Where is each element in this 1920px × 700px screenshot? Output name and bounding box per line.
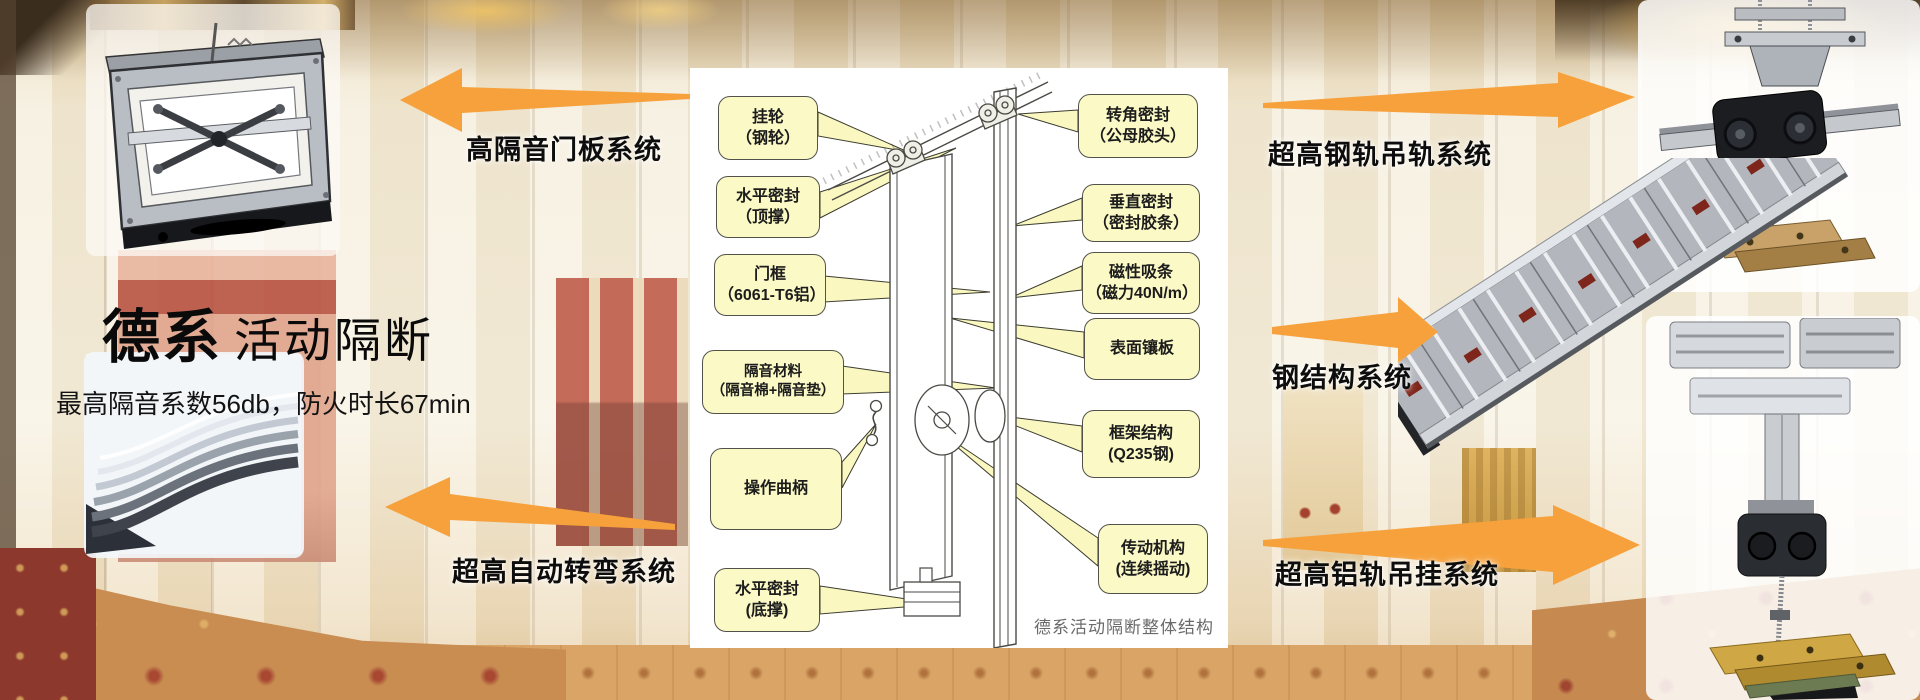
brand-product: 活动隔断: [234, 302, 434, 371]
brand-series: 德系: [102, 290, 222, 374]
callout-line2: （密封胶条）: [1093, 213, 1189, 234]
red-chair-columns: [556, 278, 688, 546]
callout-corner-seal: 转角密封 （公母胶头）: [1078, 94, 1198, 158]
callout-vertical-seal: 垂直密封 （密封胶条）: [1082, 184, 1200, 242]
callout-line1: 传动机构: [1121, 538, 1185, 559]
callout-line1: 挂轮: [752, 107, 784, 128]
aluminum-rail-system-photo: [1650, 318, 1920, 700]
callout-top-seal: 水平密封 （顶撑）: [716, 176, 820, 238]
structure-diagram-panel: 挂轮 （钢轮） 水平密封 （顶撑） 门框 （6061-T6铝） 隔音材料 （隔音…: [690, 68, 1228, 648]
callout-line2: （公母胶头）: [1090, 126, 1186, 147]
callout-hanging-wheel: 挂轮 （钢轮）: [718, 96, 818, 160]
door-panel-mechanism-photo: [88, 5, 338, 255]
callout-line1: 操作曲柄: [744, 478, 808, 499]
callout-line2: （隔音棉+隔音垫）: [711, 382, 835, 401]
label-steel-rail-system: 超高钢轨吊轨系统: [1268, 133, 1492, 172]
callout-transmission: 传动机构 (连续摇动): [1098, 524, 1208, 594]
callout-line2: （磁力40N/m）: [1086, 283, 1196, 304]
callout-line1: 转角密封: [1106, 105, 1170, 126]
label-aluminum-rail-system: 超高铝轨吊挂系统: [1275, 553, 1499, 592]
left-wall-edge: [0, 0, 16, 565]
callout-line1: 隔音材料: [744, 363, 802, 382]
callout-line2: (Q235钢): [1108, 444, 1174, 465]
callout-bottom-seal: 水平密封 (底撑): [714, 568, 820, 632]
callout-line2: （6061-T6铝）: [718, 285, 822, 306]
callout-line1: 框架结构: [1109, 423, 1173, 444]
callout-line1: 水平密封: [736, 186, 800, 207]
callout-magnetic-strip: 磁性吸条 （磁力40N/m）: [1082, 252, 1200, 314]
callout-frame-structure: 框架结构 (Q235钢): [1082, 410, 1200, 478]
carpet-corner-red: [0, 548, 96, 700]
callout-line1: 门框: [754, 264, 786, 285]
callout-door-frame: 门框 （6061-T6铝）: [714, 254, 826, 316]
diagram-caption: 德系活动隔断整体结构: [1034, 613, 1214, 638]
callout-line1: 垂直密封: [1109, 192, 1173, 213]
banquet-doorway: [1283, 385, 1363, 570]
callout-line1: 磁性吸条: [1109, 262, 1173, 283]
callout-line2: （顶撑）: [736, 207, 800, 228]
callout-crank-handle: 操作曲柄: [710, 448, 842, 530]
callout-sound-insulation: 隔音材料 （隔音棉+隔音垫）: [702, 350, 844, 414]
callout-line2: （钢轮）: [736, 128, 800, 149]
callout-line2: (底撑): [746, 600, 789, 621]
label-auto-turn-system: 超高自动转弯系统: [452, 550, 676, 589]
label-door-panel-system: 高隔音门板系统: [466, 128, 662, 167]
poster: 德系 活动隔断 最高隔音系数56db，防火时长67min: [0, 0, 1920, 700]
callout-surface-panel: 表面镶板: [1084, 318, 1200, 380]
product-title: 德系 活动隔断: [102, 290, 434, 374]
callout-line2: (连续摇动): [1116, 559, 1191, 580]
callout-line1: 水平密封: [735, 579, 799, 600]
label-steel-structure-system: 钢结构系统: [1272, 356, 1412, 395]
product-specs: 最高隔音系数56db，防火时长67min: [56, 384, 471, 421]
callout-line1: 表面镶板: [1110, 338, 1174, 359]
